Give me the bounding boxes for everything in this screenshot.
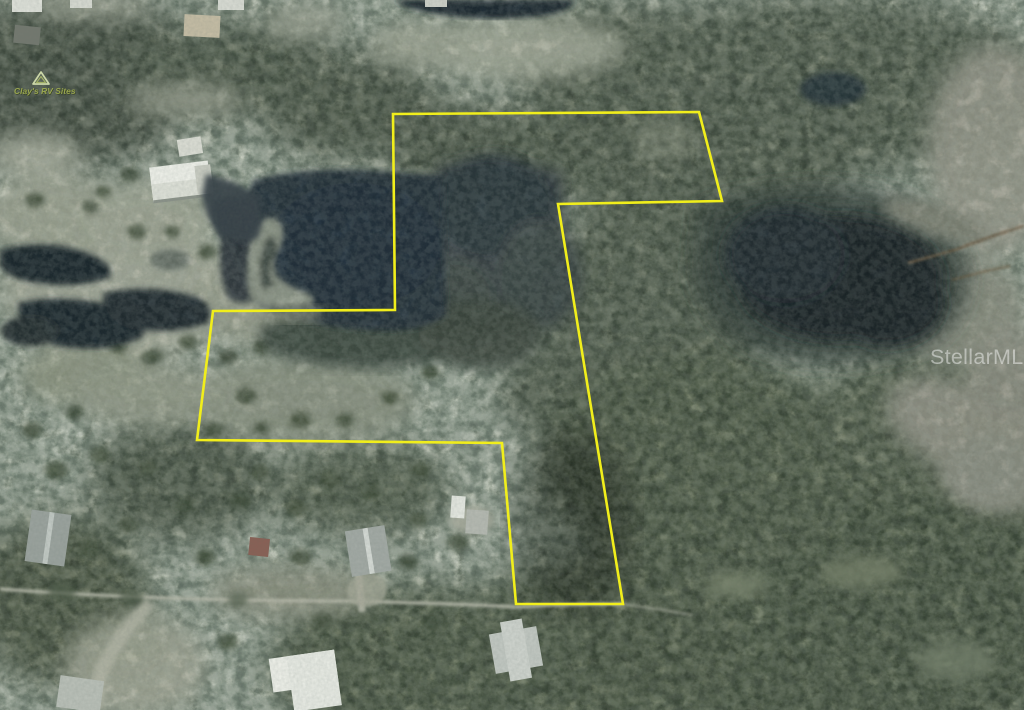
svg-text:Clay's RV Sites: Clay's RV Sites	[14, 86, 76, 96]
svg-text:StellarMLS: StellarMLS	[930, 345, 1024, 369]
